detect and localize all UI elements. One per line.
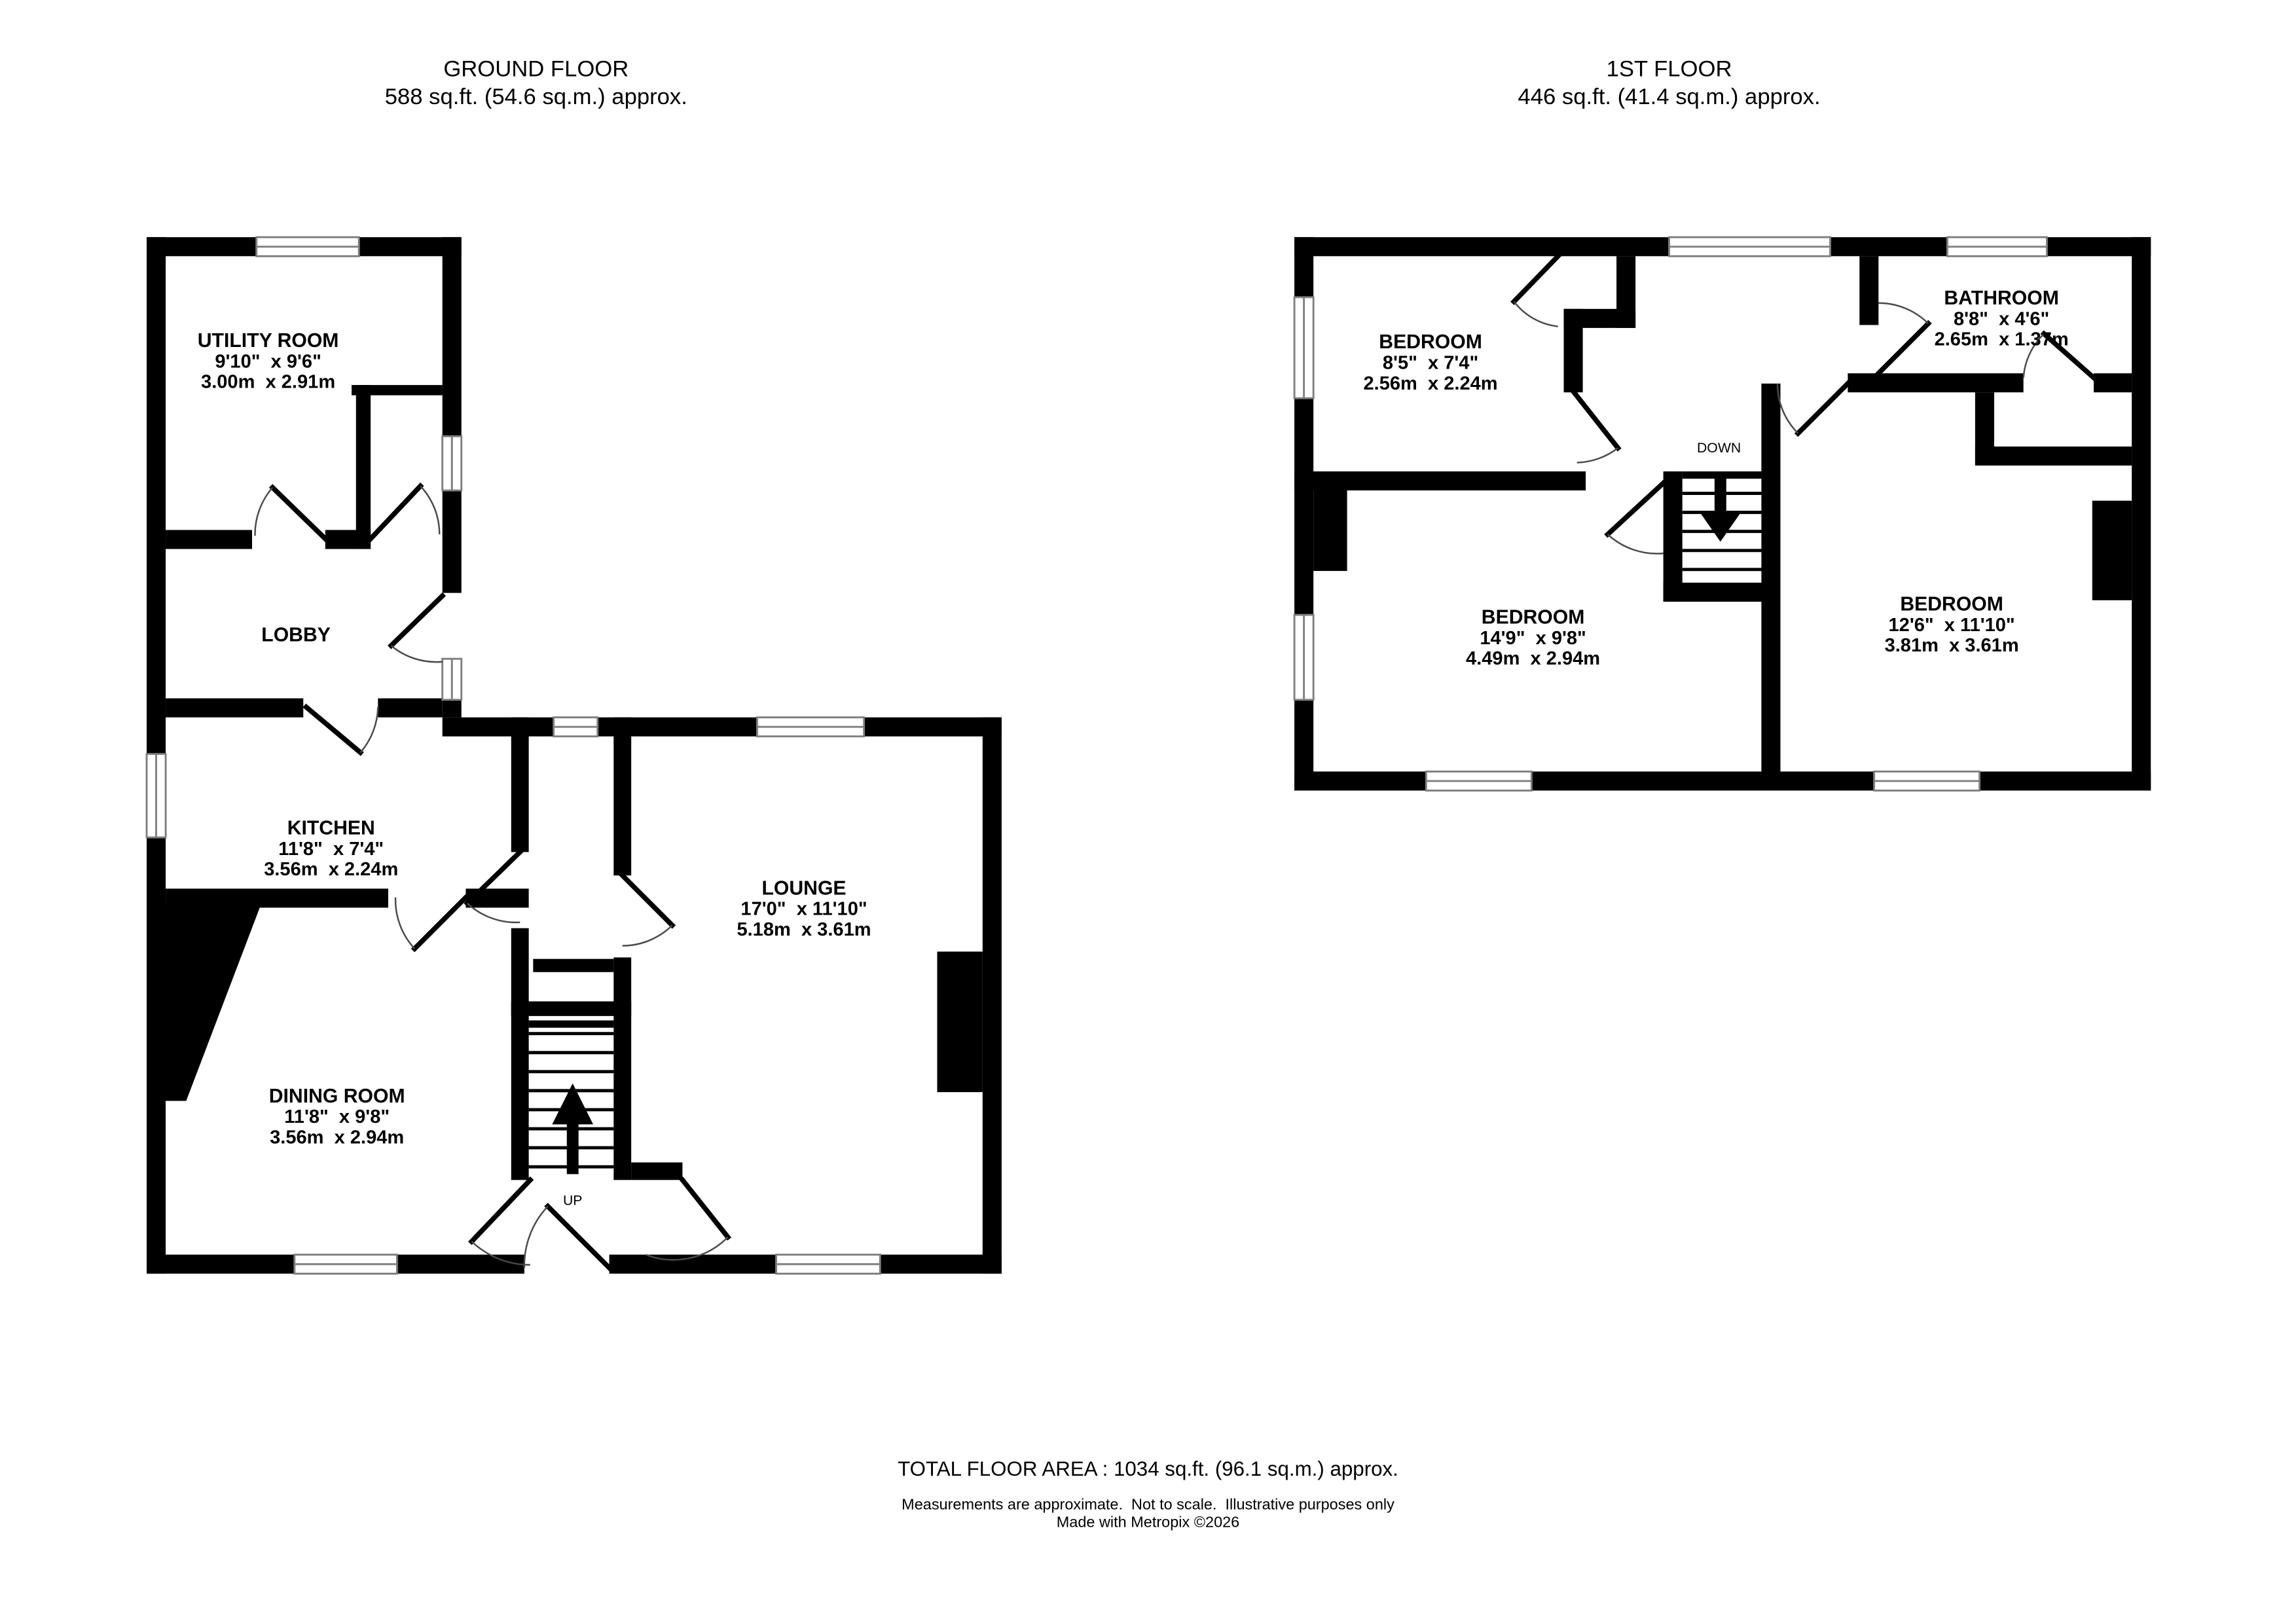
wall-segment: [356, 385, 371, 549]
room-name: KITCHEN: [287, 818, 375, 839]
window-symbol: [147, 754, 166, 837]
wall-segment: [613, 957, 631, 1180]
ground-floor-area: 588 sq.ft. (54.6 sq.m.) approx.: [385, 84, 687, 109]
window-symbol: [443, 436, 462, 490]
room-size-metric: 3.00m x 2.91m: [201, 372, 335, 393]
credit: Made with Metropix ©2026: [1057, 1513, 1240, 1530]
window-symbol: [1669, 237, 1831, 256]
window-symbol: [757, 718, 864, 737]
room-name: BEDROOM: [1379, 331, 1482, 353]
room-label-lounge: LOUNGE 17'0" x 11'10" 5.18m x 3.61m: [737, 877, 871, 940]
wall-segment: [397, 1254, 524, 1273]
wall-segment: [1975, 447, 2132, 465]
door-entrance-left: [471, 1180, 530, 1265]
wall-segment: [864, 718, 1002, 737]
room-label-bedroom1: BEDROOM 8'5" x 7'4" 2.56m x 2.24m: [1364, 331, 1498, 394]
door-store: [371, 486, 439, 538]
chamfered-wall: [147, 905, 261, 1101]
wall-segment: [443, 237, 462, 436]
window-symbol: [1947, 237, 2047, 256]
wall-segment: [2132, 237, 2151, 790]
window-symbol: [257, 237, 359, 256]
window-symbol: [1294, 297, 1313, 398]
wall-segment: [511, 1001, 631, 1015]
room-size-imperial: 9'10" x 9'6": [215, 351, 321, 372]
floorplan-page: GROUND FLOOR 588 sq.ft. (54.6 sq.m.) app…: [0, 0, 2296, 1606]
wall-segment: [2094, 373, 2132, 392]
wall-segment: [1848, 373, 2023, 392]
wall-segment: [613, 718, 631, 875]
door-bedroom1: [1514, 256, 1558, 326]
door-front-lobby: [391, 596, 442, 662]
door-landing: [1574, 392, 1618, 462]
room-size-metric: 3.81m x 3.61m: [1885, 635, 2019, 656]
room-label-utility: UTILITY ROOM 9'10" x 9'6" 3.00m x 2.91m: [198, 330, 339, 393]
first-floor-plan: BEDROOM 8'5" x 7'4" 2.56m x 2.24m BATHRO…: [1294, 237, 2151, 790]
wall-segment: [443, 718, 554, 737]
wall-segment: [631, 1162, 682, 1180]
room-name: UTILITY ROOM: [198, 330, 339, 352]
room-size-imperial: 14'9" x 9'8": [1480, 628, 1586, 649]
wall-segment: [443, 700, 462, 718]
room-name: DINING ROOM: [269, 1086, 405, 1107]
room-name: BEDROOM: [1900, 593, 2003, 615]
door-lounge: [623, 875, 672, 945]
room-size-imperial: 11'8" x 7'4": [278, 839, 384, 860]
room-size-metric: 3.56m x 2.94m: [270, 1127, 404, 1148]
footer: TOTAL FLOOR AREA : 1034 sq.ft. (96.1 sq.…: [898, 1457, 1398, 1530]
wall-segment: [147, 237, 257, 256]
door-bathroom: [1878, 303, 1928, 373]
ground-floor-plan: UTILITY ROOM 9'10" x 9'6" 3.00m x 2.91m …: [147, 237, 1002, 1273]
room-size-metric: 3.56m x 2.24m: [264, 859, 398, 880]
door-lounge-entrance: [646, 1180, 728, 1260]
room-name: BEDROOM: [1482, 607, 1585, 629]
wall-segment: [1664, 471, 1683, 602]
room-name: LOUNGE: [761, 877, 846, 899]
staircase-down: [1683, 471, 1762, 570]
room-size-imperial: 8'8" x 4'6": [1954, 308, 2049, 329]
wall-segment: [1294, 237, 1669, 256]
wall-segment: [147, 1254, 295, 1273]
floorplan-canvas: GROUND FLOOR 588 sq.ft. (54.6 sq.m.) app…: [0, 0, 2296, 1606]
door-kitchen-hall: [467, 852, 520, 922]
wall-segment: [1531, 771, 1874, 790]
stair-up-label: UP: [563, 1192, 583, 1208]
window-symbol: [295, 1254, 397, 1273]
chimney-breast: [1313, 488, 1347, 571]
wall-segment: [443, 490, 462, 593]
room-size-imperial: 11'8" x 9'8": [284, 1106, 390, 1127]
wall-segment: [1564, 309, 1583, 392]
door-bedroom3: [1777, 384, 1848, 433]
wall-segment: [1761, 384, 1780, 791]
first-floor-title: 1ST FLOOR: [1607, 56, 1732, 81]
chimney-breast: [938, 951, 983, 1092]
room-label-kitchen: KITCHEN 11'8" x 7'4" 3.56m x 2.24m: [264, 818, 398, 881]
room-label-bedroom3: BEDROOM 12'6" x 11'10" 3.81m x 3.61m: [1885, 593, 2019, 656]
wall-segment: [983, 718, 1002, 1274]
room-size-metric: 4.49m x 2.94m: [1466, 648, 1600, 669]
wall-segment: [511, 928, 529, 1180]
room-name: BATHROOM: [1944, 287, 2058, 309]
door-kitchen-lobby: [306, 707, 378, 752]
wall-segment: [147, 237, 166, 754]
wall-segment: [378, 699, 442, 718]
door-kitchen-dining: [395, 898, 465, 949]
total-floor-area: TOTAL FLOOR AREA : 1034 sq.ft. (96.1 sq.…: [898, 1457, 1398, 1480]
room-size-imperial: 17'0" x 11'10": [740, 899, 867, 920]
wall-segment: [511, 718, 529, 852]
window-symbol: [776, 1254, 881, 1273]
room-label-bathroom: BATHROOM 8'8" x 4'6" 2.65m x 1.37m: [1935, 287, 2069, 350]
wall-segment: [1831, 237, 1948, 256]
door-bedroom2: [1608, 483, 1664, 554]
wall-segment: [1859, 256, 1878, 325]
room-label-dining: DINING ROOM 11'8" x 9'8" 3.56m x 2.94m: [269, 1086, 405, 1148]
room-size-metric: 2.65m x 1.37m: [1935, 329, 2069, 350]
stair-tread: [529, 1021, 614, 1028]
first-floor-area: 446 sq.ft. (41.4 sq.m.) approx.: [1518, 84, 1820, 109]
room-size-metric: 2.56m x 2.24m: [1364, 373, 1498, 394]
wall-segment: [533, 959, 613, 972]
chimney-breast: [2092, 501, 2132, 600]
window-symbol: [554, 718, 598, 737]
stair-down-label: DOWN: [1697, 440, 1741, 456]
room-label-bedroom2: BEDROOM 14'9" x 9'8" 4.49m x 2.94m: [1466, 607, 1600, 670]
room-size-metric: 5.18m x 3.61m: [737, 919, 871, 940]
room-label-lobby: LOBBY: [261, 624, 331, 646]
wall-segment: [166, 699, 303, 718]
window-symbol: [443, 659, 462, 700]
staircase-up: [529, 1021, 614, 1175]
window-symbol: [1294, 615, 1313, 700]
wall-segment: [1980, 771, 2151, 790]
room-size-imperial: 12'6" x 11'10": [1889, 615, 2015, 636]
window-symbol: [1874, 771, 1980, 790]
door-entrance-right: [524, 1207, 610, 1268]
door-utility: [255, 488, 325, 539]
window-symbol: [1426, 771, 1531, 790]
ground-floor-title: GROUND FLOOR: [443, 56, 629, 81]
wall-segment: [880, 1254, 1002, 1273]
disclaimer: Measurements are approximate. Not to sca…: [902, 1495, 1394, 1512]
wall-segment: [1294, 398, 1313, 615]
room-size-imperial: 8'5" x 7'4": [1383, 352, 1478, 373]
wall-segment: [1294, 771, 1426, 790]
wall-segment: [166, 530, 252, 549]
